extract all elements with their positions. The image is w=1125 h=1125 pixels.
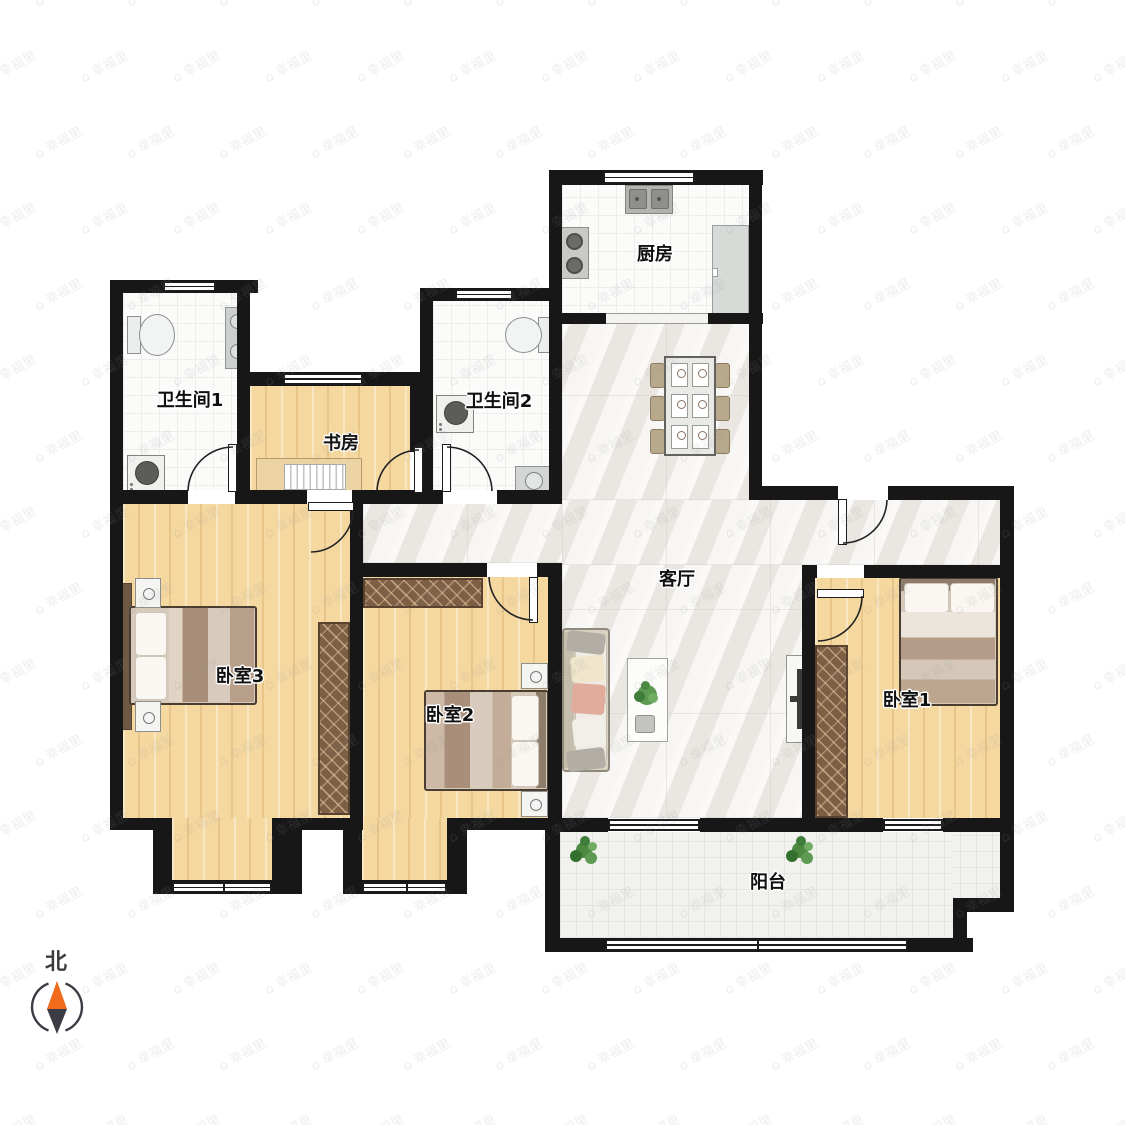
watermark: ⌂ 幸福里 bbox=[859, 273, 913, 314]
watermark: ⌂ 幸福里 bbox=[997, 349, 1051, 390]
watermark: ⌂ 幸福里 bbox=[307, 0, 361, 10]
watermark: ⌂ 幸福里 bbox=[1089, 805, 1125, 846]
dining-table bbox=[664, 356, 716, 456]
watermark: ⌂ 幸福里 bbox=[859, 0, 913, 10]
watermark: ⌂ 幸福里 bbox=[813, 349, 867, 390]
door-leaf bbox=[817, 589, 864, 598]
watermark: ⌂ 幸福里 bbox=[997, 197, 1051, 238]
room-label-bathroom1: 卫生间1 bbox=[157, 386, 224, 412]
watermark: ⌂ 幸福里 bbox=[491, 1033, 545, 1074]
wall bbox=[110, 818, 172, 830]
watermark: ⌂ 幸福里 bbox=[997, 45, 1051, 86]
watermark: ⌂ 幸福里 bbox=[31, 425, 85, 466]
wall bbox=[343, 830, 362, 882]
balcony-door-window bbox=[608, 819, 700, 831]
floorplan-canvas: 厨房 卫生间1 卫生间2 书房 客厅 卧室1 卧室2 卧室3 阳台 北 ⌂ 幸福… bbox=[0, 0, 1125, 1125]
watermark: ⌂ 幸福里 bbox=[1043, 0, 1097, 10]
watermark: ⌂ 幸福里 bbox=[767, 0, 821, 10]
hall-floor bbox=[562, 500, 1000, 565]
watermark: ⌂ 幸福里 bbox=[123, 0, 177, 10]
watermark: ⌂ 幸福里 bbox=[399, 121, 453, 162]
watermark: ⌂ 幸福里 bbox=[1089, 957, 1125, 998]
window bbox=[603, 171, 695, 184]
balcony-window bbox=[605, 939, 908, 951]
wall bbox=[272, 830, 302, 882]
watermark: ⌂ 幸福里 bbox=[169, 45, 223, 86]
door-gap bbox=[817, 565, 864, 578]
sofa-pillow bbox=[566, 747, 606, 772]
watermark: ⌂ 幸福里 bbox=[1089, 45, 1125, 86]
watermark: ⌂ 幸福里 bbox=[583, 121, 637, 162]
wall bbox=[549, 170, 562, 504]
wall bbox=[352, 490, 443, 504]
sofa-pillow bbox=[566, 630, 606, 655]
wall bbox=[802, 565, 815, 830]
watermark: ⌂ 幸福里 bbox=[0, 805, 39, 846]
watermark: ⌂ 幸福里 bbox=[31, 273, 85, 314]
watermark: ⌂ 幸福里 bbox=[951, 1033, 1005, 1074]
wardrobe bbox=[318, 622, 350, 815]
watermark: ⌂ 幸福里 bbox=[1043, 425, 1097, 466]
watermark: ⌂ 幸福里 bbox=[0, 1109, 39, 1125]
watermark: ⌂ 幸福里 bbox=[1089, 349, 1125, 390]
watermark: ⌂ 幸福里 bbox=[445, 197, 499, 238]
watermark: ⌂ 幸福里 bbox=[215, 121, 269, 162]
wall bbox=[110, 490, 188, 504]
watermark: ⌂ 幸福里 bbox=[31, 729, 85, 770]
watermark: ⌂ 幸福里 bbox=[1043, 729, 1097, 770]
watermark: ⌂ 幸福里 bbox=[169, 197, 223, 238]
watermark: ⌂ 幸福里 bbox=[997, 1109, 1051, 1125]
bedroom2-bay-floor bbox=[362, 818, 447, 882]
watermark: ⌂ 幸福里 bbox=[491, 121, 545, 162]
watermark: ⌂ 幸福里 bbox=[0, 653, 39, 694]
watermark: ⌂ 幸福里 bbox=[31, 1033, 85, 1074]
watermark: ⌂ 幸福里 bbox=[123, 121, 177, 162]
watermark: ⌂ 幸福里 bbox=[951, 425, 1005, 466]
watermark: ⌂ 幸福里 bbox=[537, 45, 591, 86]
room-label-kitchen: 厨房 bbox=[637, 240, 673, 266]
watermark: ⌂ 幸福里 bbox=[77, 197, 131, 238]
watermark: ⌂ 幸福里 bbox=[1043, 121, 1097, 162]
watermark: ⌂ 幸福里 bbox=[675, 0, 729, 10]
fridge-icon bbox=[712, 225, 749, 317]
watermark: ⌂ 幸福里 bbox=[629, 957, 683, 998]
watermark: ⌂ 幸福里 bbox=[859, 425, 913, 466]
watermark: ⌂ 幸福里 bbox=[169, 957, 223, 998]
watermark: ⌂ 幸福里 bbox=[997, 957, 1051, 998]
wall bbox=[272, 818, 362, 830]
dining-chair bbox=[715, 429, 730, 454]
wall bbox=[864, 565, 1014, 578]
watermark: ⌂ 幸福里 bbox=[353, 197, 407, 238]
plant-icon bbox=[786, 836, 816, 870]
window bbox=[283, 373, 363, 385]
wall bbox=[1000, 486, 1014, 900]
nightstand bbox=[135, 701, 161, 732]
wardrobe bbox=[815, 645, 848, 818]
room-label-balcony: 阳台 bbox=[750, 868, 786, 894]
wall bbox=[700, 818, 883, 832]
watermark: ⌂ 幸福里 bbox=[1043, 577, 1097, 618]
watermark: ⌂ 幸福里 bbox=[813, 197, 867, 238]
watermark: ⌂ 幸福里 bbox=[261, 957, 315, 998]
wall bbox=[235, 490, 307, 504]
watermark: ⌂ 幸福里 bbox=[537, 957, 591, 998]
watermark: ⌂ 幸福里 bbox=[859, 121, 913, 162]
corridor-floor bbox=[363, 504, 562, 563]
watermark: ⌂ 幸福里 bbox=[31, 881, 85, 922]
watermark: ⌂ 幸福里 bbox=[629, 45, 683, 86]
watermark: ⌂ 幸福里 bbox=[767, 1033, 821, 1074]
wall bbox=[943, 818, 1014, 832]
wall bbox=[708, 313, 763, 324]
sofa bbox=[562, 628, 610, 772]
watermark: ⌂ 幸福里 bbox=[813, 957, 867, 998]
door-leaf bbox=[838, 499, 847, 545]
watermark: ⌂ 幸福里 bbox=[1043, 881, 1097, 922]
watermark: ⌂ 幸福里 bbox=[675, 121, 729, 162]
door-leaf bbox=[308, 502, 354, 511]
watermark: ⌂ 幸福里 bbox=[0, 349, 39, 390]
wall bbox=[110, 280, 123, 830]
watermark: ⌂ 幸福里 bbox=[123, 1033, 177, 1074]
watermark: ⌂ 幸福里 bbox=[721, 1109, 775, 1125]
watermark: ⌂ 幸福里 bbox=[813, 45, 867, 86]
watermark: ⌂ 幸福里 bbox=[905, 1109, 959, 1125]
wall bbox=[545, 818, 560, 952]
watermark: ⌂ 幸福里 bbox=[491, 0, 545, 10]
watermark: ⌂ 幸福里 bbox=[353, 957, 407, 998]
nightstand bbox=[521, 791, 548, 817]
door-leaf bbox=[442, 444, 451, 492]
toilet-bowl-icon bbox=[139, 314, 175, 356]
watermark: ⌂ 幸福里 bbox=[1043, 1033, 1097, 1074]
sofa-pillow bbox=[571, 683, 606, 715]
wall bbox=[237, 280, 250, 504]
sofa-pillow bbox=[572, 716, 607, 747]
room-label-bathroom2: 卫生间2 bbox=[466, 387, 533, 413]
bedroom3-bay-floor bbox=[172, 818, 272, 882]
watermark: ⌂ 幸福里 bbox=[491, 881, 545, 922]
kitchen-sink-icon bbox=[625, 185, 673, 214]
room-label-study: 书房 bbox=[323, 429, 359, 455]
washing-machine-icon bbox=[127, 455, 165, 493]
watermark: ⌂ 幸福里 bbox=[261, 197, 315, 238]
wall bbox=[953, 898, 967, 952]
watermark: ⌂ 幸福里 bbox=[307, 273, 361, 314]
watermark: ⌂ 幸福里 bbox=[353, 1109, 407, 1125]
watermark: ⌂ 幸福里 bbox=[629, 1109, 683, 1125]
dining-chair bbox=[650, 363, 665, 388]
watermark: ⌂ 幸福里 bbox=[537, 1109, 591, 1125]
watermark: ⌂ 幸福里 bbox=[445, 1109, 499, 1125]
bay-window bbox=[362, 882, 447, 893]
watermark: ⌂ 幸福里 bbox=[1089, 1109, 1125, 1125]
room-label-bedroom2: 卧室2 bbox=[426, 701, 475, 727]
plant-icon bbox=[570, 836, 600, 870]
watermark: ⌂ 幸福里 bbox=[215, 1033, 269, 1074]
watermark: ⌂ 幸福里 bbox=[261, 1109, 315, 1125]
watermark: ⌂ 幸福里 bbox=[675, 1033, 729, 1074]
room-label-living: 客厅 bbox=[659, 565, 695, 591]
wall bbox=[153, 830, 172, 882]
coffee-table bbox=[627, 658, 668, 742]
wall bbox=[888, 486, 1014, 500]
watermark: ⌂ 幸福里 bbox=[445, 957, 499, 998]
watermark: ⌂ 幸福里 bbox=[31, 121, 85, 162]
books-icon bbox=[284, 464, 346, 490]
window bbox=[455, 289, 513, 300]
wall bbox=[548, 563, 562, 818]
watermark: ⌂ 幸福里 bbox=[1043, 273, 1097, 314]
bay-window bbox=[172, 882, 272, 893]
watermark: ⌂ 幸福里 bbox=[951, 273, 1005, 314]
door-gap bbox=[838, 486, 888, 500]
watermark: ⌂ 幸福里 bbox=[77, 45, 131, 86]
sofa-pillow bbox=[570, 655, 605, 684]
nightstand bbox=[135, 578, 161, 608]
door-gap bbox=[188, 490, 235, 504]
kitchen-opening bbox=[606, 313, 708, 324]
watermark: ⌂ 幸福里 bbox=[767, 121, 821, 162]
door-gap bbox=[487, 563, 537, 577]
watermark: ⌂ 幸福里 bbox=[951, 121, 1005, 162]
stove-icon bbox=[561, 227, 589, 279]
watermark: ⌂ 幸福里 bbox=[583, 0, 637, 10]
compass-icon bbox=[26, 976, 88, 1038]
wall bbox=[749, 170, 762, 500]
watermark: ⌂ 幸福里 bbox=[77, 1109, 131, 1125]
watermark: ⌂ 幸福里 bbox=[0, 197, 39, 238]
wall bbox=[350, 490, 363, 830]
dining-chair bbox=[715, 396, 730, 421]
watermark: ⌂ 幸福里 bbox=[307, 1033, 361, 1074]
tray bbox=[635, 715, 655, 733]
room-label-bedroom3: 卧室3 bbox=[216, 662, 265, 688]
wardrobe bbox=[363, 578, 483, 608]
watermark: ⌂ 幸福里 bbox=[1089, 501, 1125, 542]
watermark: ⌂ 幸福里 bbox=[1089, 197, 1125, 238]
watermark: ⌂ 幸福里 bbox=[583, 1033, 637, 1074]
window bbox=[163, 281, 216, 292]
window bbox=[883, 819, 943, 831]
watermark: ⌂ 幸福里 bbox=[721, 45, 775, 86]
watermark: ⌂ 幸福里 bbox=[813, 1109, 867, 1125]
wall bbox=[497, 490, 562, 504]
watermark: ⌂ 幸福里 bbox=[1089, 653, 1125, 694]
watermark: ⌂ 幸福里 bbox=[0, 501, 39, 542]
watermark: ⌂ 幸福里 bbox=[905, 45, 959, 86]
watermark: ⌂ 幸福里 bbox=[399, 0, 453, 10]
wall bbox=[447, 830, 467, 882]
toilet-bowl-icon bbox=[505, 317, 542, 353]
door-leaf bbox=[414, 447, 423, 493]
dining-chair bbox=[650, 396, 665, 421]
watermark: ⌂ 幸福里 bbox=[31, 0, 85, 10]
room-label-bedroom1: 卧室1 bbox=[883, 686, 932, 712]
watermark: ⌂ 幸福里 bbox=[399, 1033, 453, 1074]
nightstand bbox=[521, 663, 548, 689]
watermark: ⌂ 幸福里 bbox=[261, 45, 315, 86]
dining-chair bbox=[715, 363, 730, 388]
watermark: ⌂ 幸福里 bbox=[905, 349, 959, 390]
watermark: ⌂ 幸福里 bbox=[721, 957, 775, 998]
watermark: ⌂ 幸福里 bbox=[859, 1033, 913, 1074]
wall bbox=[357, 563, 487, 577]
watermark: ⌂ 幸福里 bbox=[353, 45, 407, 86]
bed bbox=[129, 606, 257, 705]
dining-chair bbox=[650, 429, 665, 454]
watermark: ⌂ 幸福里 bbox=[215, 0, 269, 10]
wall bbox=[549, 313, 606, 324]
watermark: ⌂ 幸福里 bbox=[445, 45, 499, 86]
watermark: ⌂ 幸福里 bbox=[0, 45, 39, 86]
watermark: ⌂ 幸福里 bbox=[951, 0, 1005, 10]
watermark: ⌂ 幸福里 bbox=[767, 273, 821, 314]
watermark: ⌂ 幸福里 bbox=[905, 197, 959, 238]
watermark: ⌂ 幸福里 bbox=[307, 121, 361, 162]
watermark: ⌂ 幸福里 bbox=[31, 577, 85, 618]
wall bbox=[410, 372, 423, 452]
wall bbox=[749, 486, 838, 500]
watermark: ⌂ 幸福里 bbox=[905, 957, 959, 998]
watermark: ⌂ 幸福里 bbox=[767, 425, 821, 466]
door-gap bbox=[443, 490, 497, 504]
compass-north-label: 北 bbox=[45, 944, 67, 976]
wall bbox=[447, 818, 560, 830]
door-leaf bbox=[529, 577, 538, 623]
door-leaf bbox=[228, 444, 237, 492]
watermark: ⌂ 幸福里 bbox=[169, 1109, 223, 1125]
